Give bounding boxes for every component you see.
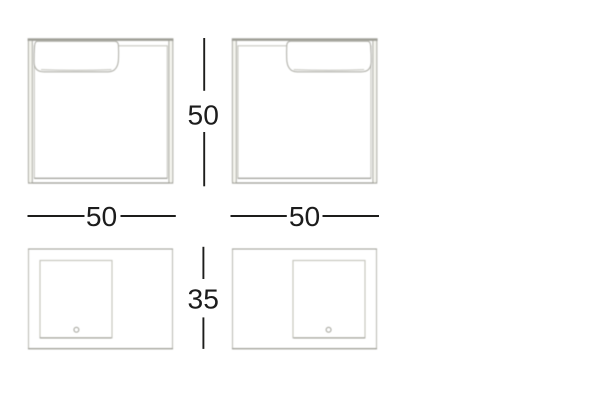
svg-text:50: 50 <box>289 200 320 232</box>
svg-text:50: 50 <box>86 200 117 232</box>
svg-text:35: 35 <box>188 282 219 314</box>
svg-text:50: 50 <box>188 98 219 130</box>
